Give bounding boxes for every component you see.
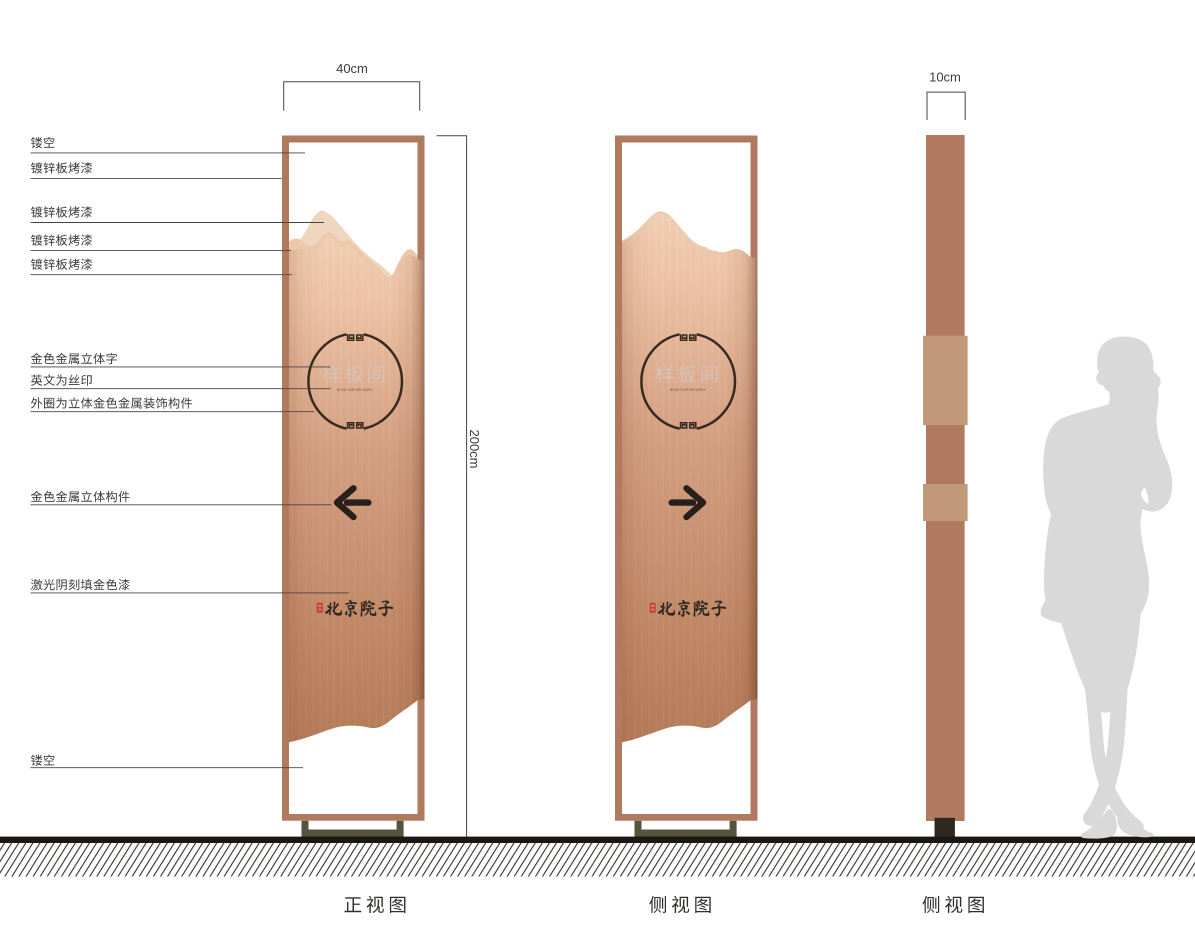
- svg-text:BEIJING COURTYARD SAMPLE: BEIJING COURTYARD SAMPLE: [337, 388, 373, 392]
- svg-text:200cm: 200cm: [467, 429, 482, 468]
- svg-text:10cm: 10cm: [929, 70, 961, 85]
- svg-text:40cm: 40cm: [336, 61, 368, 76]
- svg-text:BEIJING COURTYARD SAMPLE: BEIJING COURTYARD SAMPLE: [670, 388, 706, 392]
